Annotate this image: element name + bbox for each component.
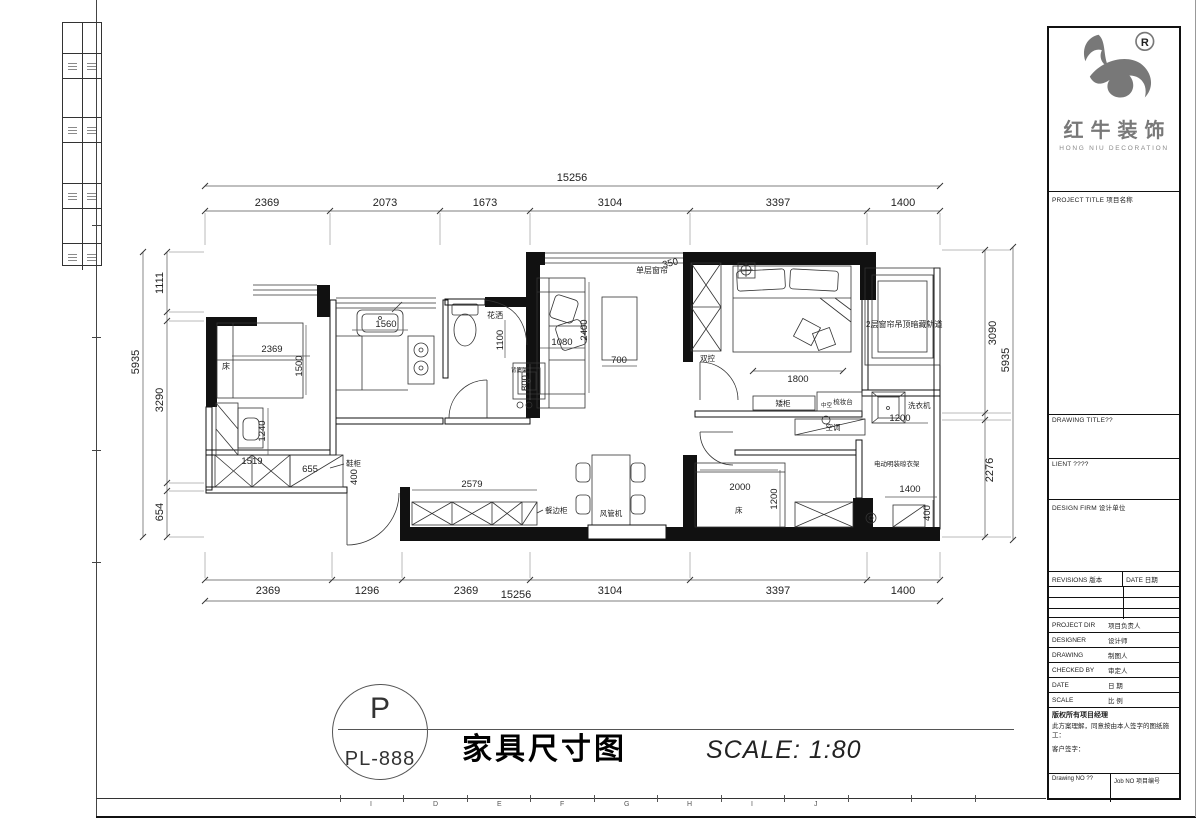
- dim-text: 1100: [495, 330, 506, 350]
- row-label-en: CHECKED BY: [1049, 667, 1108, 674]
- row-label-en: DESIGNER: [1049, 637, 1108, 644]
- design-firm-label: DESIGN FIRM 设计单位: [1049, 500, 1179, 512]
- label-ac: 空调: [826, 422, 841, 432]
- registered-mark: R: [1141, 37, 1149, 49]
- duct-ac-unit: [588, 525, 666, 539]
- dim-text: 1673: [473, 197, 497, 209]
- dim-text: 5935: [130, 350, 142, 374]
- project-title-section: PROJECT TITLE 项目名称: [1049, 192, 1179, 415]
- ruler-letter: E: [497, 801, 502, 808]
- row-label-cn: 设计师: [1108, 635, 1128, 645]
- number-cells: Drawing NO ?? Job NO 项目编号: [1049, 774, 1179, 802]
- dim-text: 2000: [729, 482, 750, 493]
- info-row-checked-by: CHECKED BY 审定人: [1049, 663, 1179, 678]
- sheet-right-border: [1195, 0, 1196, 817]
- revisions-label: REVISIONS 版本: [1049, 572, 1123, 586]
- dim-text: 1400: [891, 197, 915, 209]
- dim-text: 1080: [551, 337, 572, 348]
- floor-plan-svg: 15256 2369 2073 1673 3104 3397 1400 2369…: [90, 160, 1030, 630]
- drawing-number-bubble: P PL-888: [332, 684, 428, 780]
- bed-master: [733, 266, 851, 352]
- ruler-tick: [848, 795, 849, 802]
- dim-text: 700: [611, 355, 627, 366]
- dim-text: 2369: [256, 585, 280, 597]
- dim-text: 3290: [154, 388, 166, 412]
- wardrobe-left: [215, 403, 290, 487]
- dim-text: 800: [520, 375, 531, 391]
- info-row-project-dir: PROJECT DIR 项目负责人: [1049, 618, 1179, 633]
- revisions-date-label: DATE 日期: [1123, 572, 1179, 586]
- row-label-en: PROJECT DIR: [1049, 622, 1108, 629]
- bull-logo: R: [1059, 28, 1169, 112]
- ruler-tick: [340, 795, 341, 802]
- dim-text: 400: [922, 505, 933, 521]
- ruler-letter: J: [814, 801, 818, 808]
- label-basin: 背篓架: [511, 366, 528, 374]
- dim-text: 1296: [355, 585, 379, 597]
- room-label-bed3: 床: [735, 505, 743, 515]
- dim-top: 15256 2369 2073 1673 3104 3397 1400: [202, 172, 943, 214]
- copyright-line2: 此方案理解，同意按由本人签字的图纸施工：: [1052, 722, 1176, 742]
- row-label-cn: 日 期: [1108, 680, 1123, 690]
- ruler-tick: [911, 795, 912, 802]
- drawing-no-label: Drawing NO ??: [1049, 774, 1111, 802]
- info-rows: PROJECT DIR 项目负责人 DESIGNER 设计师 DRAWING 制…: [1049, 618, 1179, 708]
- dim-text: 1560: [375, 319, 396, 330]
- revisions-section: REVISIONS 版本 DATE 日期: [1049, 572, 1179, 618]
- sheet-bottom-border: [96, 816, 1196, 818]
- dim-text: 1400: [899, 484, 920, 495]
- dim-text: 3104: [598, 197, 622, 209]
- label-shower: 花洒: [487, 310, 503, 320]
- dim-text: 1240: [257, 420, 268, 441]
- bottom-ruler-line: [96, 798, 1046, 799]
- ruler-letter: I: [370, 801, 372, 808]
- drawing-title: 家具尺寸图: [462, 724, 627, 768]
- sideboard-cabinet: [412, 502, 543, 525]
- label-low-cabinet: 矮柜: [776, 398, 791, 408]
- brand-name-cn: 红牛装饰: [1064, 114, 1172, 143]
- bed-left: [217, 323, 303, 398]
- dim-text: 1500: [294, 355, 305, 376]
- row-label-cn: 审定人: [1108, 665, 1128, 675]
- scale-note: SCALE: 1:80: [706, 736, 862, 765]
- dim-text: 3090: [987, 321, 999, 345]
- row-label-cn: 比 例: [1108, 695, 1123, 705]
- logo-horn-shape: [1084, 35, 1108, 67]
- dim-text: 15256: [501, 589, 532, 601]
- bubble-number: PL-888: [333, 748, 427, 771]
- job-no-label: Job NO 项目编号: [1111, 774, 1179, 802]
- title-block: R 红牛装饰 HONG NIU DECORATION PROJECT TITLE…: [1047, 26, 1181, 800]
- dim-text: 2400: [579, 319, 590, 340]
- client-label: LIENT ????: [1049, 459, 1179, 468]
- dim-text: 1400: [891, 585, 915, 597]
- ruler-letter: F: [560, 801, 564, 808]
- dim-text: 15256: [557, 172, 588, 184]
- project-title-label: PROJECT TITLE 项目名称: [1049, 192, 1179, 204]
- label-dresser-note: 中空: [821, 401, 833, 409]
- dim-text: 1519: [241, 456, 262, 467]
- label-shoe-cabinet: 鞋柜: [346, 458, 361, 468]
- bubble-letter: P: [333, 687, 427, 731]
- row-label-cn: 制图人: [1108, 650, 1128, 660]
- cabinet-bedroom2: [795, 502, 853, 527]
- dim-text: 1111: [154, 272, 166, 294]
- drawing-sheet: 15256 2369 2073 1673 3104 3397 1400 2369…: [0, 0, 1200, 828]
- dim-text: 5935: [1000, 348, 1012, 372]
- dim-text: 3397: [766, 585, 790, 597]
- dim-left: 5935 1111 3290 654: [130, 249, 170, 540]
- label-sideboard: 餐边柜: [545, 505, 568, 515]
- company-logo-section: R 红牛装饰 HONG NIU DECORATION: [1049, 28, 1179, 192]
- dim-text: 1800: [787, 374, 808, 385]
- label-dresser: 梳妆台: [833, 397, 853, 406]
- dim-text: 2276: [984, 458, 996, 482]
- coffee-table: [602, 297, 637, 360]
- info-row-designer: DESIGNER 设计师: [1049, 633, 1179, 648]
- dim-text: 655: [302, 464, 318, 475]
- row-label-en: DRAWING: [1049, 652, 1108, 659]
- ruler-tick: [530, 795, 531, 802]
- label-double-curtain-track: 2层窗帘吊顶暗藏轨道: [866, 319, 942, 329]
- drawing-title-section: DRAWING TITLE??: [1049, 415, 1179, 459]
- ruler-tick: [403, 795, 404, 802]
- room-label-bed1: 床: [222, 361, 230, 371]
- label-duct-ac: 风管机: [600, 508, 623, 518]
- brand-name-en: HONG NIU DECORATION: [1059, 145, 1168, 152]
- wardrobe-master: [691, 263, 721, 351]
- row-label-cn: 项目负责人: [1108, 620, 1141, 630]
- dim-text: 2073: [373, 197, 397, 209]
- info-row-drawing: DRAWING 制图人: [1049, 648, 1179, 663]
- dim-text: 1200: [889, 413, 910, 424]
- kitchen-stove: [336, 336, 434, 390]
- label-double-switch: 双控: [700, 353, 715, 363]
- drawing-title-label: DRAWING TITLE??: [1049, 415, 1179, 424]
- dim-text: 3104: [598, 585, 622, 597]
- dim-text: 2369: [261, 344, 282, 355]
- utility-corner-cabinet: [866, 505, 925, 527]
- label-drying-rack: 电动明装晾衣架: [874, 459, 920, 468]
- ruler-tick: [467, 795, 468, 802]
- copyright-section: 版权所有项目经理 此方案理解，同意按由本人签字的图纸施工： 客户签字：: [1049, 708, 1179, 774]
- toilet: [452, 304, 478, 346]
- label-single-curtain: 单层窗帘: [636, 265, 668, 275]
- ruler-letter: G: [624, 801, 629, 808]
- ruler-letter: I: [751, 801, 753, 808]
- ruler-letter: H: [687, 801, 692, 808]
- info-row-date: DATE 日 期: [1049, 678, 1179, 693]
- row-label-en: SCALE: [1049, 697, 1108, 704]
- dim-text: 2369: [255, 197, 279, 209]
- dim-text: 400: [349, 469, 360, 485]
- label-washer: 洗衣机: [908, 400, 931, 410]
- dim-text: 2369: [454, 585, 478, 597]
- ruler-letter: D: [433, 801, 438, 808]
- ruler-tick: [657, 795, 658, 802]
- dim-text: 3397: [766, 197, 790, 209]
- title-rule-line: [338, 729, 1014, 730]
- row-label-en: DATE: [1049, 682, 1108, 689]
- copyright-line1: 版权所有项目经理: [1052, 711, 1176, 722]
- ruler-tick: [594, 795, 595, 802]
- design-firm-section: DESIGN FIRM 设计单位: [1049, 500, 1179, 572]
- dim-right: 3090 2276 5935: [982, 244, 1016, 543]
- client-sign-label: 客户签字：: [1052, 745, 1176, 755]
- dim-text: 1200: [769, 488, 780, 509]
- dim-text: 2579: [461, 479, 482, 490]
- dim-bottom: 2369 1296 2369 3104 3397 1400 15256: [202, 577, 943, 604]
- balcony-frame: [865, 268, 940, 365]
- ruler-tick: [784, 795, 785, 802]
- ruler-tick: [975, 795, 976, 802]
- client-section: LIENT ????: [1049, 459, 1179, 500]
- logo-body-shape: [1090, 59, 1151, 98]
- dim-text: 654: [154, 503, 166, 521]
- ruler-tick: [721, 795, 722, 802]
- info-row-scale: SCALE 比 例: [1049, 693, 1179, 708]
